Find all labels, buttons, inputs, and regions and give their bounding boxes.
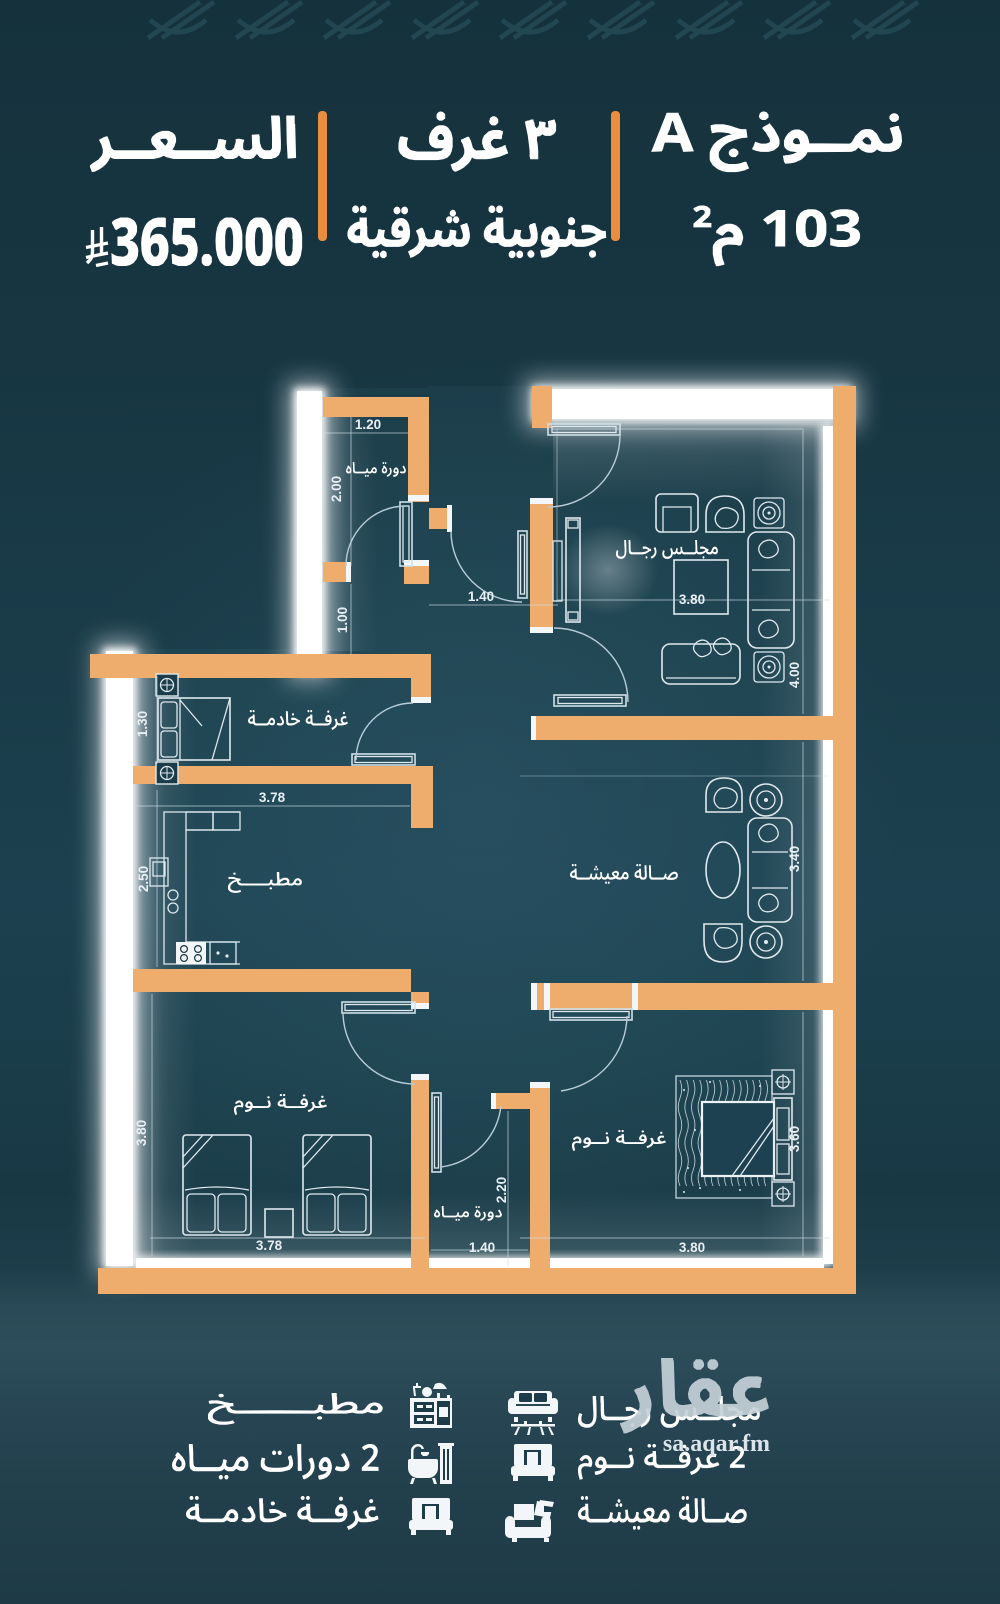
svg-text:1.30: 1.30 — [135, 711, 150, 737]
svg-text:1.20: 1.20 — [355, 417, 381, 432]
svg-text:2.50: 2.50 — [136, 866, 151, 892]
svg-text:3.78: 3.78 — [259, 790, 286, 805]
svg-text:1.40: 1.40 — [468, 589, 494, 604]
svg-text:sa.aqar.fm: sa.aqar.fm — [663, 1431, 770, 1457]
svg-text:3.80: 3.80 — [679, 1240, 705, 1255]
svg-text:1.40: 1.40 — [469, 1240, 495, 1255]
svg-text:3.60: 3.60 — [787, 1126, 802, 1152]
svg-text:2.00: 2.00 — [329, 476, 344, 502]
svg-text:4.00: 4.00 — [787, 662, 802, 688]
svg-text:1.00: 1.00 — [335, 607, 350, 633]
svg-text:3.80: 3.80 — [679, 592, 705, 607]
svg-text:3.40: 3.40 — [787, 846, 802, 872]
svg-text:3.80: 3.80 — [134, 1120, 149, 1146]
svg-text:2.20: 2.20 — [494, 1177, 509, 1203]
svg-text:3.78: 3.78 — [256, 1238, 283, 1253]
